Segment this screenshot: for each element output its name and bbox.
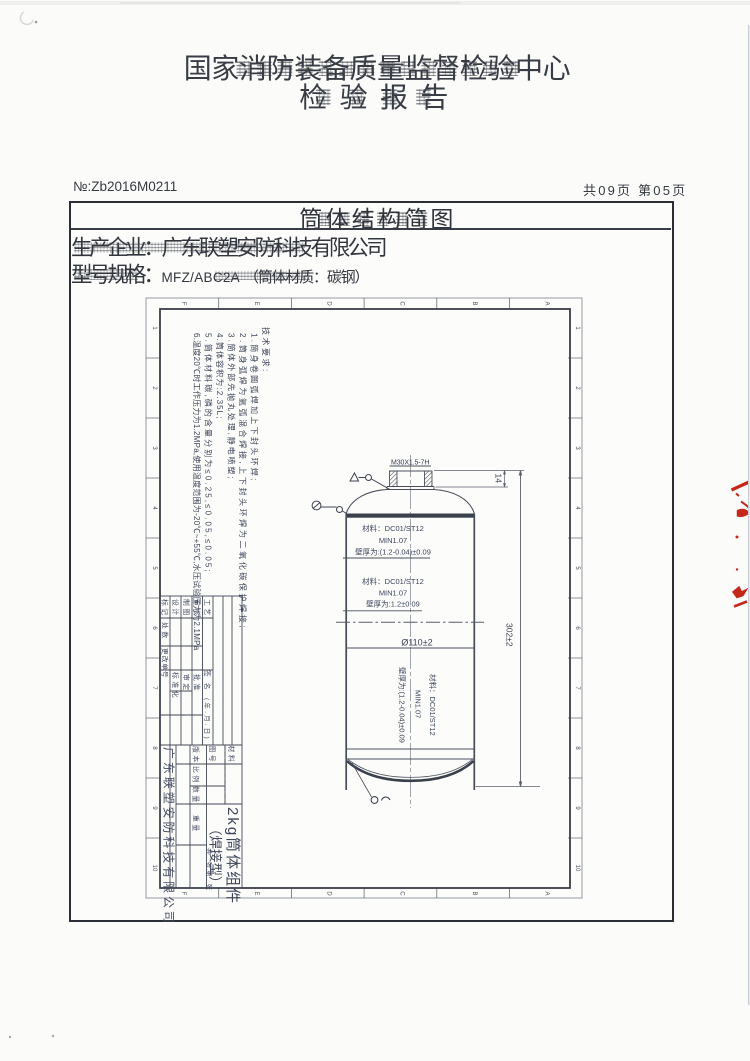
svg-text:2.筒身弧焊为氩弧混合焊接,上下封头环焊为二氧化碳保护焊接;: 2.筒身弧焊为氩弧混合焊接,上下封头环焊为二氧化碳保护焊接; — [238, 333, 248, 630]
svg-text:M30X1.5-7H: M30X1.5-7H — [391, 460, 429, 467]
svg-text:版本: 版本 — [192, 746, 201, 765]
svg-text:比例: 比例 — [192, 766, 201, 785]
svg-text:3.筒体外部先抛丸处理,静电喷塑;: 3.筒体外部先抛丸处理,静电喷塑; — [227, 333, 237, 480]
svg-text:审定: 审定 — [182, 674, 191, 693]
svg-text:9: 9 — [574, 806, 580, 810]
svg-text:材料：DC01/ST12: 材料：DC01/ST12 — [428, 674, 438, 736]
svg-text:制图: 制图 — [182, 599, 191, 618]
svg-text:2: 2 — [151, 386, 157, 390]
svg-text:材料: 材料 — [227, 746, 236, 765]
svg-text:广东联塑安防科技有限公司: 广东联塑安防科技有限公司 — [162, 747, 177, 926]
svg-text:302±2: 302±2 — [505, 623, 515, 647]
svg-text:审核: 审核 — [193, 599, 202, 618]
svg-text:2kg筒体组件: 2kg筒体组件 — [224, 807, 241, 905]
svg-text:批准: 批准 — [193, 674, 202, 693]
svg-text:设计: 设计 — [171, 599, 180, 618]
svg-text:4.筒体容积为:2.35L;: 4.筒体容积为:2.35L; — [215, 333, 225, 420]
svg-text:标记: 标记 — [161, 599, 170, 618]
svg-text:3: 3 — [574, 446, 580, 450]
svg-text:8: 8 — [151, 746, 157, 750]
svg-text:6: 6 — [574, 626, 580, 630]
svg-text:1.筒身卷圆弧焊加上下封头环焊;: 1.筒身卷圆弧焊加上下封头环焊; — [250, 333, 260, 483]
svg-text:壁厚为:1.2±0.09: 壁厚为:1.2±0.09 — [366, 599, 420, 609]
svg-text:4: 4 — [151, 506, 157, 510]
svg-text:工艺: 工艺 — [203, 599, 211, 618]
svg-text:A: A — [544, 891, 550, 895]
svg-text:MIN1.07: MIN1.07 — [379, 536, 407, 545]
svg-text:MIN1.07: MIN1.07 — [379, 589, 407, 598]
svg-text:B: B — [471, 301, 477, 305]
svg-text:9: 9 — [151, 806, 157, 810]
svg-text:10: 10 — [574, 865, 580, 872]
svg-text:材料：DC01/ST12: 材料：DC01/ST12 — [362, 576, 424, 586]
svg-text:B: B — [471, 891, 477, 895]
svg-text:7: 7 — [151, 686, 157, 690]
svg-text:更改单号: 更改单号 — [161, 648, 170, 678]
svg-text:处数: 处数 — [161, 622, 170, 641]
svg-text:2: 2 — [574, 386, 580, 390]
svg-text:壁厚为:(1.2-0.04)±0.09: 壁厚为:(1.2-0.04)±0.09 — [398, 667, 408, 743]
svg-text:C: C — [398, 301, 404, 306]
svg-text:数量: 数量 — [192, 786, 201, 805]
svg-text:3: 3 — [151, 446, 157, 450]
svg-text:5: 5 — [574, 566, 580, 570]
svg-text:1: 1 — [574, 326, 580, 330]
svg-text:D: D — [326, 891, 332, 896]
svg-text:E: E — [253, 891, 259, 895]
svg-text:材料：DC01/ST12: 材料：DC01/ST12 — [362, 523, 424, 533]
svg-text:（焊接型）: （焊接型） — [208, 822, 224, 890]
svg-text:E: E — [253, 301, 259, 305]
svg-text:5: 5 — [151, 566, 157, 570]
svg-text:Ø110±2: Ø110±2 — [401, 638, 432, 648]
svg-text:重量: 重量 — [192, 815, 200, 834]
svg-text:F: F — [180, 302, 186, 306]
svg-text:1: 1 — [151, 326, 157, 330]
svg-text:5.筒体材料碳,磷的含量分别为≤0.25,≤0.05,≤0.: 5.筒体材料碳,磷的含量分别为≤0.25,≤0.05,≤0.05; — [204, 333, 214, 574]
svg-text:A: A — [544, 301, 550, 305]
svg-text:MIN1.07: MIN1.07 — [414, 690, 423, 718]
svg-text:4: 4 — [574, 506, 580, 510]
svg-text:C: C — [398, 891, 404, 896]
svg-text:(年.月.日): (年.月.日) — [203, 698, 212, 741]
svg-text:8: 8 — [574, 746, 580, 750]
svg-text:签名: 签名 — [203, 670, 212, 696]
svg-text:7: 7 — [574, 686, 580, 690]
svg-text:14: 14 — [494, 474, 504, 484]
svg-text:10: 10 — [151, 865, 157, 872]
svg-text:F: F — [180, 892, 186, 896]
svg-text:D: D — [326, 301, 332, 306]
svg-text:壁厚为:(1.2-0.04)±0.09: 壁厚为:(1.2-0.04)±0.09 — [355, 547, 431, 557]
svg-text:6: 6 — [151, 626, 157, 630]
svg-text:技术要求:: 技术要求: — [261, 327, 271, 374]
svg-text:标准化: 标准化 — [171, 672, 180, 700]
svg-text:图号: 图号 — [208, 746, 216, 765]
